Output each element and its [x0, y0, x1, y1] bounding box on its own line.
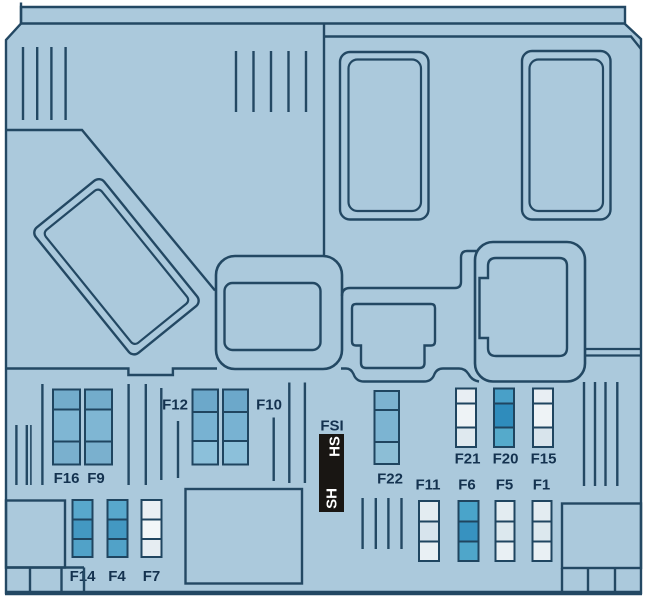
- svg-text:F15: F15: [531, 451, 557, 468]
- svg-text:HS: HS: [327, 436, 344, 457]
- svg-text:F7: F7: [143, 568, 161, 585]
- svg-text:FSI: FSI: [320, 418, 343, 435]
- svg-text:F4: F4: [108, 568, 126, 585]
- svg-text:F11: F11: [415, 477, 440, 494]
- svg-text:F10: F10: [256, 397, 282, 414]
- svg-text:F1: F1: [533, 477, 551, 494]
- svg-text:F5: F5: [496, 477, 514, 494]
- svg-text:F20: F20: [493, 451, 519, 468]
- svg-text:F6: F6: [458, 477, 476, 494]
- svg-text:F16: F16: [54, 470, 80, 487]
- svg-text:F21: F21: [455, 451, 481, 468]
- svg-text:F12: F12: [162, 397, 188, 414]
- svg-text:F9: F9: [87, 470, 105, 487]
- svg-text:F22: F22: [377, 471, 403, 488]
- svg-text:SH: SH: [324, 488, 341, 509]
